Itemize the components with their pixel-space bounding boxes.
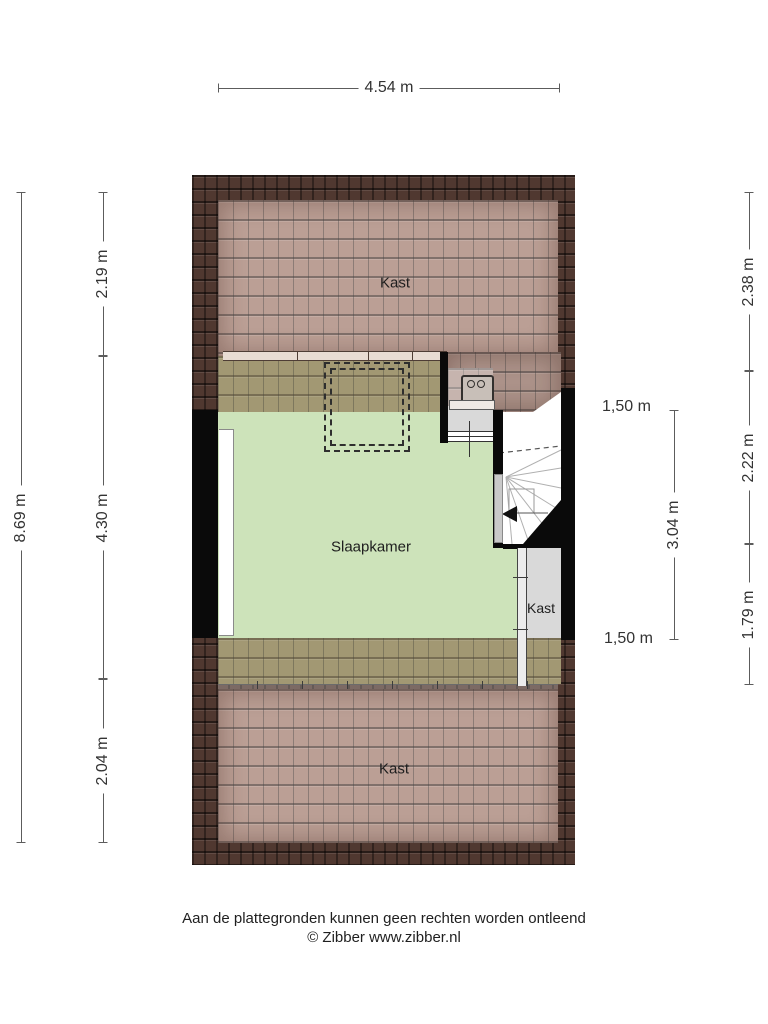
faucet-dot <box>477 380 485 388</box>
copyright-text: © Zibber www.zibber.nl <box>0 929 768 946</box>
headroom-bottom-label: 1,50 m <box>604 630 653 648</box>
faucet-dot <box>467 380 475 388</box>
wall-left <box>192 410 218 638</box>
dim-right-top-label: 2.38 m <box>740 249 758 314</box>
wall-tick <box>513 577 528 578</box>
floorplan-page: Kast Slaapkamer Kast Kast 4.54 m 8.69 m … <box>0 0 768 1024</box>
roof-window-outline <box>324 362 410 452</box>
dim-left-bottom-label: 2.04 m <box>94 729 112 794</box>
stair-handrail <box>494 474 503 543</box>
window-divider <box>412 352 413 360</box>
room-label-kast-right: Kast <box>527 600 555 616</box>
dim-right-bottom-label: 1.79 m <box>740 582 758 647</box>
dim-left-middle-label: 4.30 m <box>94 485 112 550</box>
dim-right-middle-label: 2.22 m <box>740 425 758 490</box>
dim-left-total: 8.69 m <box>12 192 29 843</box>
dim-top-width-label: 4.54 m <box>359 79 420 97</box>
dim-left-top-label: 2.19 m <box>94 242 112 307</box>
dim-stair-height-label: 3.04 m <box>665 493 683 558</box>
niche-window-tick <box>469 421 470 457</box>
wall-niche-left <box>440 352 448 443</box>
window-divider <box>368 352 369 360</box>
window-line <box>448 436 493 437</box>
wall-tick <box>513 629 528 630</box>
dim-stair-height: 3.04 m <box>665 410 682 640</box>
window-divider <box>297 352 298 360</box>
left-wall-niche <box>219 429 234 636</box>
dim-top-width: 4.54 m <box>218 79 560 96</box>
kast-partition-wall <box>517 548 527 686</box>
room-label-kast-top: Kast <box>380 275 410 292</box>
dim-right-top: 2.38 m <box>740 192 757 371</box>
disclaimer-text: Aan de plattegronden kunnen geen rechten… <box>0 910 768 927</box>
room-kast-right <box>521 548 561 638</box>
dim-left-middle: 4.30 m <box>94 356 111 679</box>
dim-left-total-label: 8.69 m <box>12 485 30 550</box>
room-label-slaapkamer: Slaapkamer <box>331 539 411 556</box>
dim-left-top: 2.19 m <box>94 192 111 356</box>
roof-slope-band-bottom <box>218 638 561 684</box>
dim-left-bottom: 2.04 m <box>94 679 111 843</box>
dim-right-middle: 2.22 m <box>740 371 757 544</box>
counter-edge <box>449 400 495 410</box>
knee-wall-window-top <box>223 351 447 361</box>
headroom-top-label: 1,50 m <box>602 398 651 416</box>
wall-right <box>561 388 575 640</box>
room-label-kast-bottom: Kast <box>379 761 409 778</box>
dim-right-bottom: 1.79 m <box>740 544 757 685</box>
niche-window-band <box>448 431 493 442</box>
roof-window-outline-inner <box>330 368 404 446</box>
